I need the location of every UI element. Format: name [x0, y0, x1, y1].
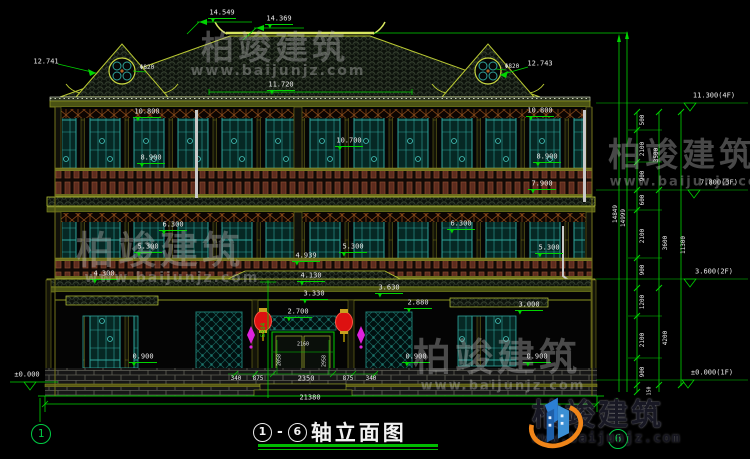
title-text: 轴立面图 [311, 417, 407, 447]
title-underline-thin [258, 449, 438, 450]
axis-bubble-1: 1 [31, 424, 51, 444]
gable-ornament-left [109, 58, 135, 84]
window-1f-left [83, 316, 138, 368]
ornate-panel-right [366, 312, 412, 370]
drawing-title: 1 - 6 轴立面图 [253, 417, 407, 447]
company-logo: 柏竣建筑 www.baijunjz.com [528, 390, 750, 459]
title-separator: - [277, 424, 283, 440]
title-axis-start-bubble: 1 [253, 423, 272, 442]
cad-elevation-screenshot: 14.549▼14.369▼11.720▼12.741Φ820Φ82012.74… [0, 0, 750, 459]
gable-ornament-right [475, 58, 501, 84]
title-axis-end-bubble: 6 [288, 423, 307, 442]
ornate-panel-left [196, 312, 242, 370]
logo-icon [528, 390, 584, 452]
window-1f-right [458, 316, 516, 366]
title-underline [258, 444, 438, 447]
